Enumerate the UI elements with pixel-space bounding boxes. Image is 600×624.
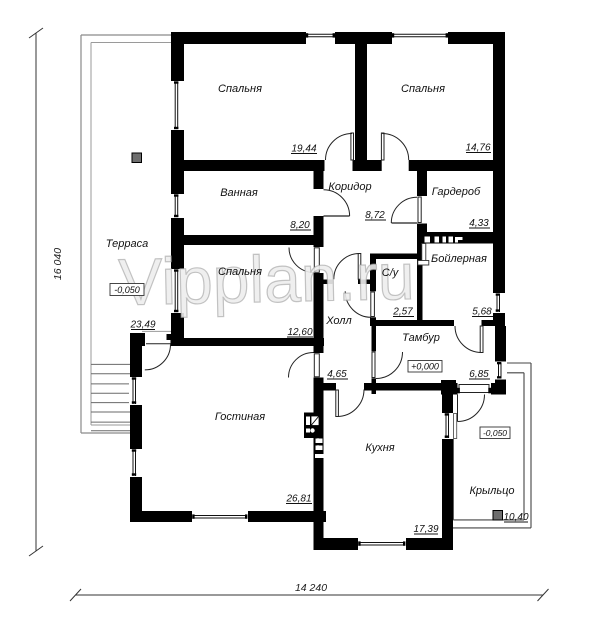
svg-text:Ванная: Ванная bbox=[220, 187, 258, 199]
svg-text:17,39: 17,39 bbox=[413, 524, 438, 535]
svg-text:Гостиная: Гостиная bbox=[215, 411, 265, 423]
svg-text:-0,050: -0,050 bbox=[114, 285, 140, 295]
svg-text:14 240: 14 240 bbox=[295, 582, 327, 594]
svg-text:4,33: 4,33 bbox=[469, 218, 489, 229]
svg-text:Vipplan.ru: Vipplan.ru bbox=[118, 239, 416, 319]
svg-text:23,49: 23,49 bbox=[129, 320, 155, 331]
svg-text:Холл: Холл bbox=[325, 315, 351, 327]
svg-text:10,40: 10,40 bbox=[503, 512, 528, 523]
svg-text:19,44: 19,44 bbox=[291, 144, 316, 155]
svg-text:Коридор: Коридор bbox=[328, 181, 371, 193]
svg-text:6,85: 6,85 bbox=[469, 369, 489, 380]
svg-text:С/у: С/у bbox=[382, 267, 400, 279]
svg-text:-0,050: -0,050 bbox=[483, 428, 507, 438]
svg-text:Кухня: Кухня bbox=[365, 442, 394, 454]
svg-text:26,81: 26,81 bbox=[285, 494, 311, 505]
svg-text:Спальня: Спальня bbox=[218, 266, 262, 278]
svg-text:16 040: 16 040 bbox=[52, 248, 64, 280]
svg-text:Гардероб: Гардероб bbox=[432, 186, 481, 198]
svg-text:8,20: 8,20 bbox=[290, 220, 310, 231]
svg-text:Тамбур: Тамбур bbox=[402, 332, 440, 344]
svg-text:2,57: 2,57 bbox=[392, 307, 413, 318]
svg-text:8,72: 8,72 bbox=[365, 210, 385, 221]
svg-text:Терраса: Терраса bbox=[106, 238, 148, 250]
svg-text:12,60: 12,60 bbox=[287, 327, 312, 338]
svg-text:Спальня: Спальня bbox=[401, 83, 445, 95]
svg-text:Спальня: Спальня bbox=[218, 83, 262, 95]
svg-text:Крыльцо: Крыльцо bbox=[469, 485, 514, 497]
svg-text:5,68: 5,68 bbox=[472, 307, 492, 318]
svg-text:Бойлерная: Бойлерная bbox=[431, 253, 487, 265]
svg-text:4,65: 4,65 bbox=[327, 369, 347, 380]
svg-text:+0,000: +0,000 bbox=[411, 362, 439, 372]
svg-text:14,76: 14,76 bbox=[465, 143, 490, 154]
